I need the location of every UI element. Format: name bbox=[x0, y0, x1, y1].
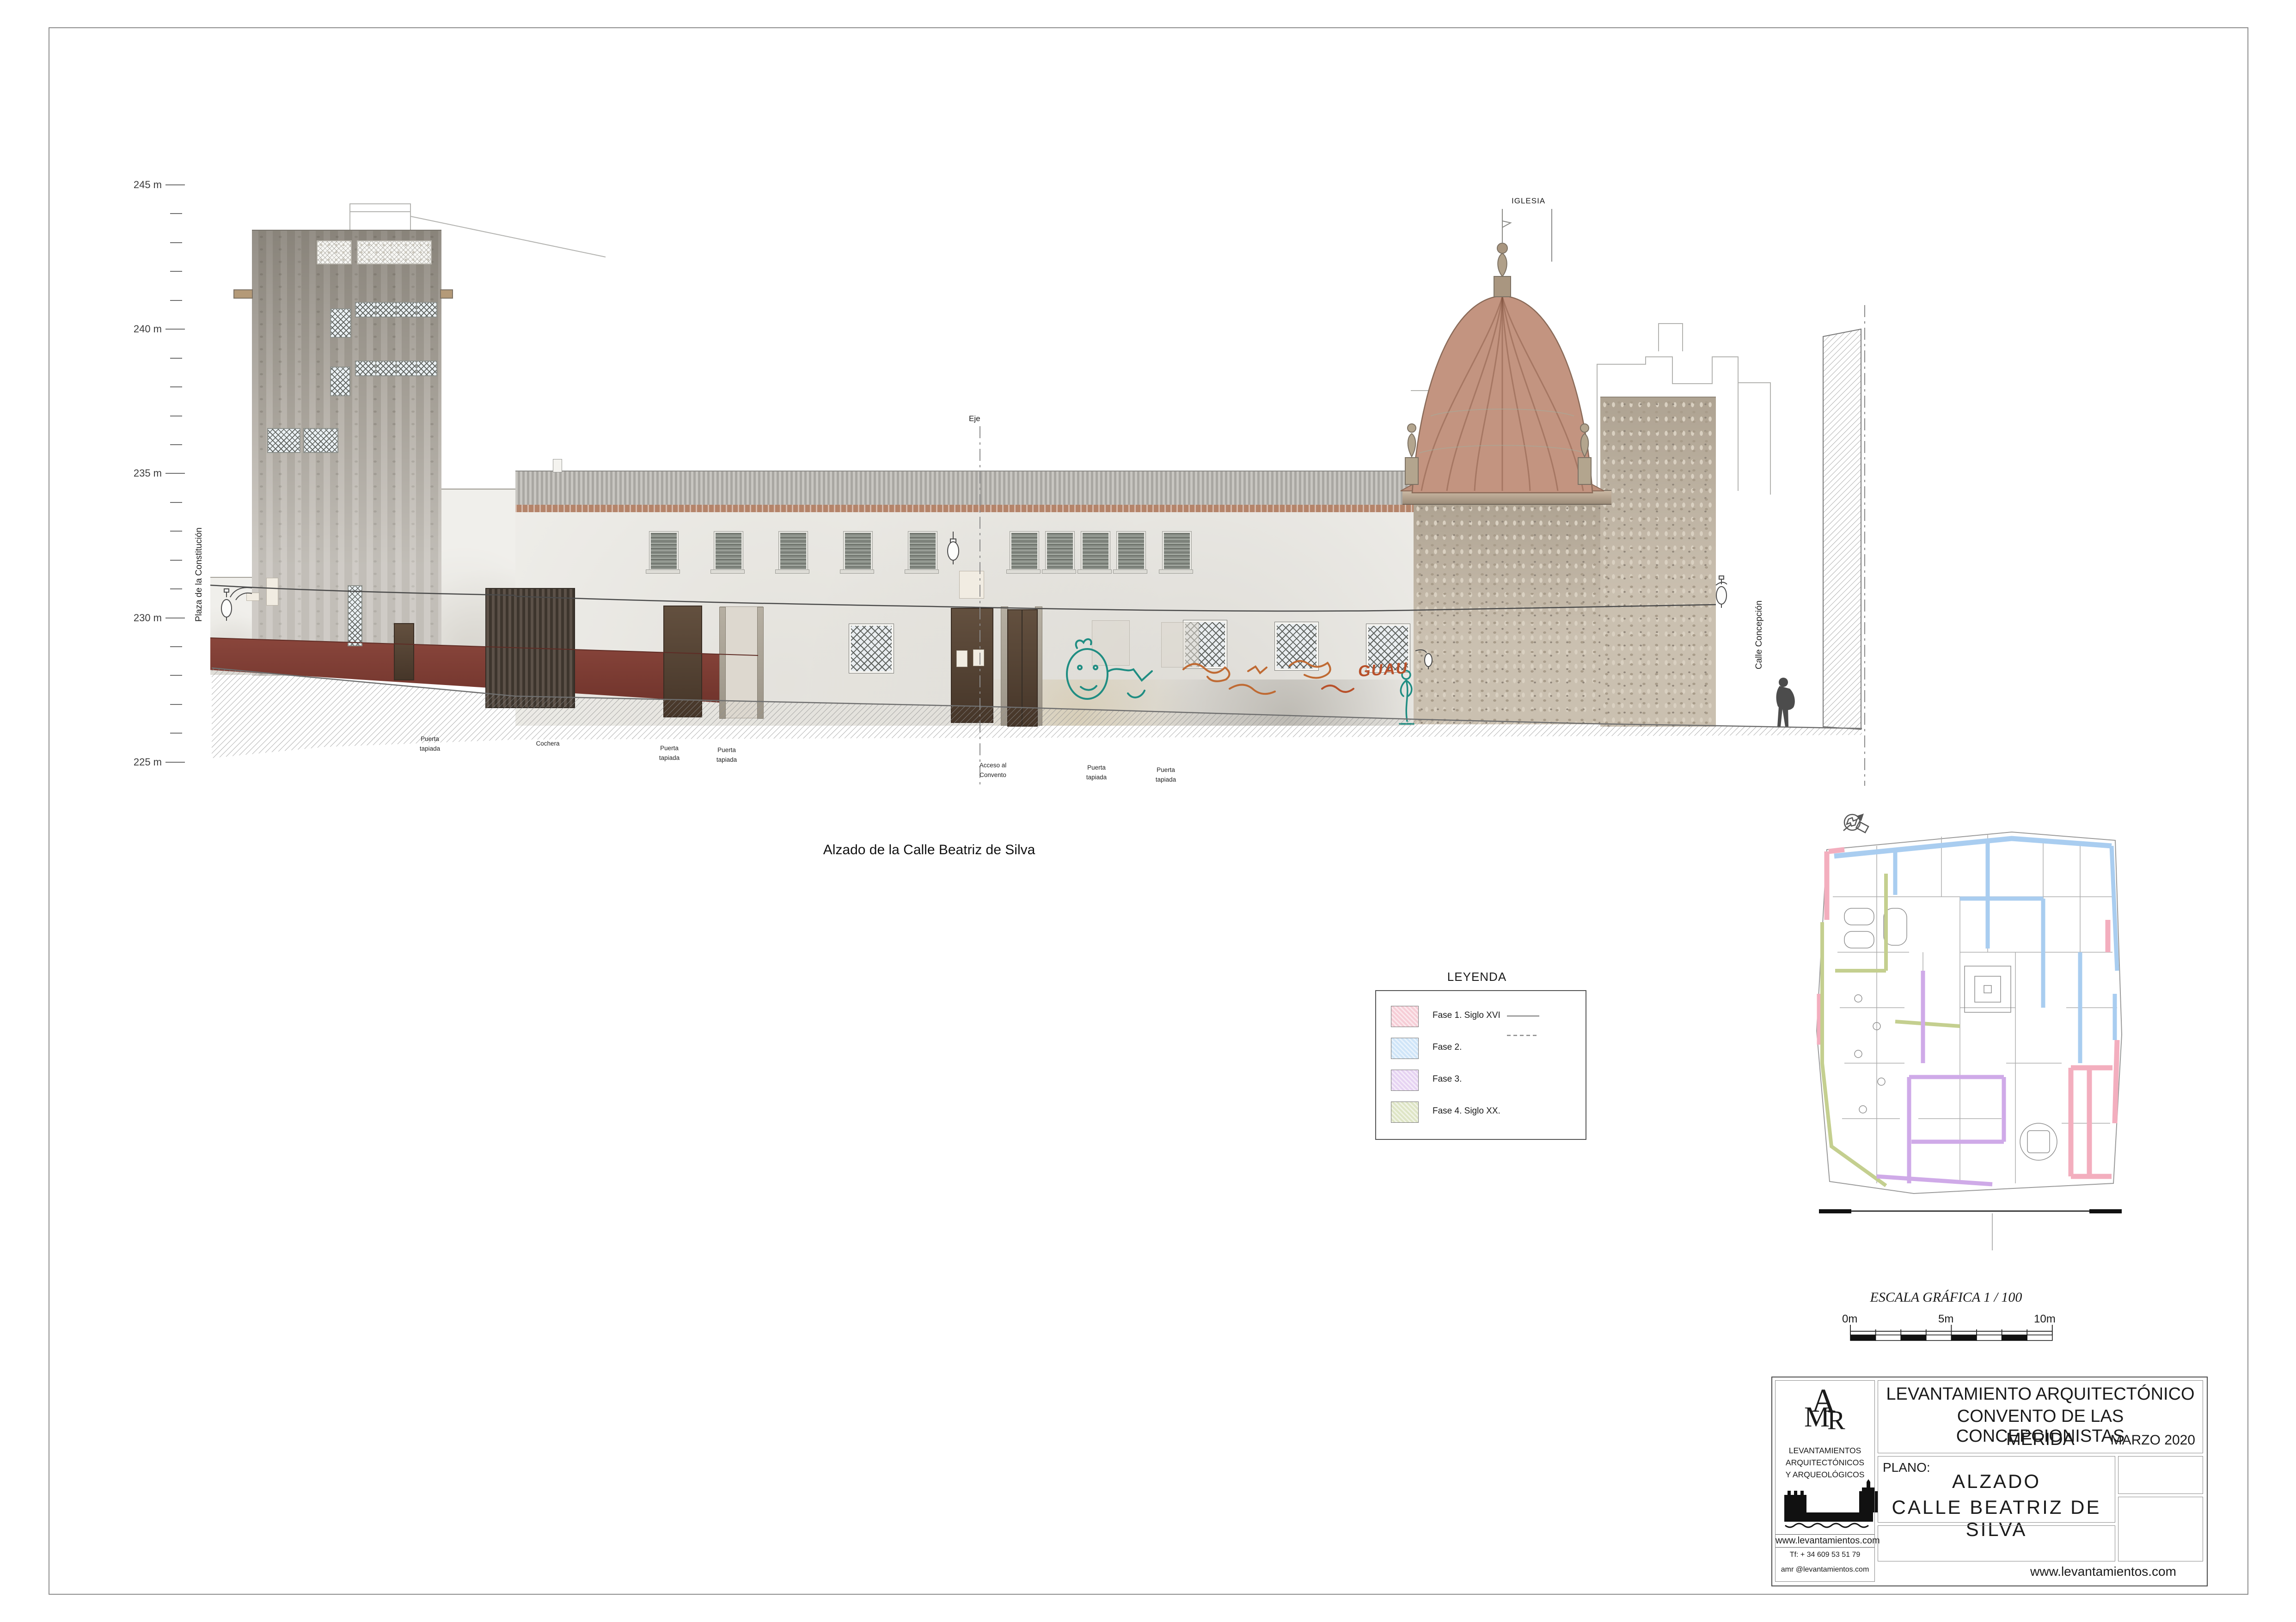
section-line bbox=[1819, 1209, 2122, 1250]
scale-0m-label: 0m bbox=[1842, 1313, 1857, 1326]
plano-title-line1: ALZADO bbox=[1878, 1470, 2115, 1493]
level-minor-tick bbox=[170, 271, 182, 272]
level-major-tick bbox=[165, 618, 185, 618]
scale-10m-label: 10m bbox=[2034, 1313, 2056, 1326]
level-label: 225 m bbox=[129, 756, 162, 768]
level-minor-tick bbox=[170, 502, 182, 503]
level-label: 240 m bbox=[129, 323, 162, 335]
logo-phone: Tf: + 34 609 53 51 79 bbox=[1776, 1551, 1874, 1559]
lamp-icon bbox=[1415, 650, 1432, 669]
elevation-caption: Alzado de la Calle Beatriz de Silva bbox=[800, 842, 1059, 858]
logo-website: www.levantamientos.com bbox=[1776, 1534, 1874, 1548]
north-arrow-icon bbox=[1843, 814, 1868, 832]
scale-bar-segment bbox=[2002, 1335, 2027, 1340]
street-lamps bbox=[221, 532, 1727, 669]
facade-annotation: Puerta tapiada bbox=[644, 743, 695, 763]
graphic-scale-bar bbox=[1850, 1325, 2052, 1340]
title-block-project-cell: LEVANTAMIENTO ARQUITECTÓNICO CONVENTO DE… bbox=[1878, 1380, 2203, 1453]
level-minor-tick bbox=[170, 386, 182, 387]
eje-label: Eje bbox=[969, 414, 980, 423]
facade-annotation: Puerta tapiada bbox=[1140, 765, 1191, 784]
legend-phase-label: Fase 3. bbox=[1433, 1074, 1462, 1084]
level-minor-tick bbox=[170, 675, 182, 676]
legend-swatch bbox=[1391, 1070, 1419, 1091]
street-right-label: Calle Concepción bbox=[1754, 600, 1764, 669]
scale-bar-segment bbox=[1926, 1335, 1952, 1340]
title-block: A M R LEVANTAMIENTOS ARQUITECTÓNICOS Y A… bbox=[1771, 1377, 2208, 1586]
facade-annotation: Cochera bbox=[522, 739, 573, 748]
level-minor-tick bbox=[170, 531, 182, 532]
level-label: 235 m bbox=[129, 467, 162, 479]
logo-company-line3: Y ARQUEOLÓGICOS bbox=[1776, 1469, 1874, 1481]
facade-annotation: Puerta tapiada bbox=[404, 734, 455, 753]
level-major-tick bbox=[165, 473, 185, 474]
level-minor-tick bbox=[170, 588, 182, 589]
level-minor-tick bbox=[170, 444, 182, 445]
project-title-line1: LEVANTAMIENTO ARQUITECTÓNICO bbox=[1878, 1384, 2203, 1404]
level-minor-tick bbox=[170, 733, 182, 734]
level-major-tick bbox=[165, 329, 185, 330]
level-minor-tick bbox=[170, 416, 182, 416]
utility-cables bbox=[210, 585, 1716, 611]
iglesia-label: IGLESIA bbox=[1512, 196, 1545, 206]
level-label: 245 m bbox=[129, 179, 162, 191]
church-dome bbox=[1401, 209, 1604, 493]
scale-bar-segment bbox=[1901, 1335, 1926, 1340]
legend-swatch bbox=[1391, 1102, 1419, 1123]
level-minor-tick bbox=[170, 213, 182, 214]
floor-plan bbox=[1817, 832, 2122, 1250]
lamp-icon bbox=[221, 588, 252, 621]
street-wall-section bbox=[1823, 305, 1865, 786]
drawing-sheet: IGLESIA Eje Plaza de la Constitución Cal… bbox=[0, 0, 2296, 1622]
logo-company-line2: ARQUITECTÓNICOS bbox=[1776, 1457, 1874, 1469]
graffiti-tag-text: GUAU bbox=[1358, 659, 1409, 680]
logo-monogram-r: R bbox=[1827, 1405, 1845, 1436]
level-major-tick bbox=[165, 762, 185, 763]
scale-bar-segment bbox=[2027, 1335, 2052, 1340]
level-minor-tick bbox=[170, 646, 182, 647]
lamp-icon bbox=[1716, 576, 1727, 608]
tower-beams bbox=[234, 290, 453, 298]
title-block-empty-cell-right-bottom bbox=[2118, 1497, 2203, 1561]
facade-annotation: Puerta tapiada bbox=[1071, 763, 1122, 782]
scale-bar-segment bbox=[1977, 1335, 2002, 1340]
logo-monogram-m: M bbox=[1804, 1401, 1830, 1434]
footer-website: www.levantamientos.com bbox=[2002, 1564, 2205, 1579]
title-block-empty-cell-right-top bbox=[2118, 1456, 2203, 1494]
scale-bar-segment bbox=[1951, 1335, 1977, 1340]
level-label: 230 m bbox=[129, 612, 162, 624]
title-block-plano-cell: PLANO: ALZADO CALLE BEATRIZ DE SILVA bbox=[1878, 1456, 2115, 1523]
level-major-tick bbox=[165, 184, 185, 185]
ground-section bbox=[212, 668, 1862, 758]
legend-phase-label: Fase 2. bbox=[1433, 1042, 1462, 1053]
project-date: MARZO 2020 bbox=[2111, 1432, 2195, 1448]
level-minor-tick bbox=[170, 358, 182, 359]
legend-swatch bbox=[1391, 1006, 1419, 1027]
legend-title: LEYENDA bbox=[1417, 970, 1537, 984]
legend-phase-label: Fase 1. Siglo XVI bbox=[1433, 1010, 1500, 1021]
person-silhouette bbox=[1776, 678, 1795, 727]
title-block-empty-cell-bottom bbox=[1878, 1525, 2115, 1561]
street-left-label: Plaza de la Constitución bbox=[194, 527, 204, 622]
legend-phase-label: Fase 4. Siglo XX. bbox=[1433, 1106, 1500, 1116]
logo-company-line1: LEVANTAMIENTOS bbox=[1776, 1444, 1874, 1457]
lamp-icon bbox=[948, 532, 959, 564]
logo-email: amr @levantamientos.com bbox=[1776, 1566, 1874, 1574]
title-block-logo-cell: A M R LEVANTAMIENTOS ARQUITECTÓNICOS Y A… bbox=[1775, 1380, 1875, 1582]
scale-bar-segment bbox=[1876, 1335, 1901, 1340]
level-minor-tick bbox=[170, 560, 182, 561]
level-minor-tick bbox=[170, 704, 182, 705]
facade-annotation: Puerta tapiada bbox=[701, 745, 752, 765]
scale-bar-segment bbox=[1850, 1335, 1876, 1340]
level-minor-tick bbox=[170, 300, 182, 301]
graphic-scale-title: ESCALA GRÁFICA 1 / 100 bbox=[1863, 1290, 2029, 1305]
scale-5m-label: 5m bbox=[1938, 1313, 1953, 1326]
level-minor-tick bbox=[170, 242, 182, 243]
facade-annotation: Acceso al Convento bbox=[967, 760, 1018, 780]
legend-box: Fase 1. Siglo XVIFase 2.Fase 3.Fase 4. S… bbox=[1375, 990, 1586, 1140]
legend-swatch bbox=[1391, 1038, 1419, 1059]
